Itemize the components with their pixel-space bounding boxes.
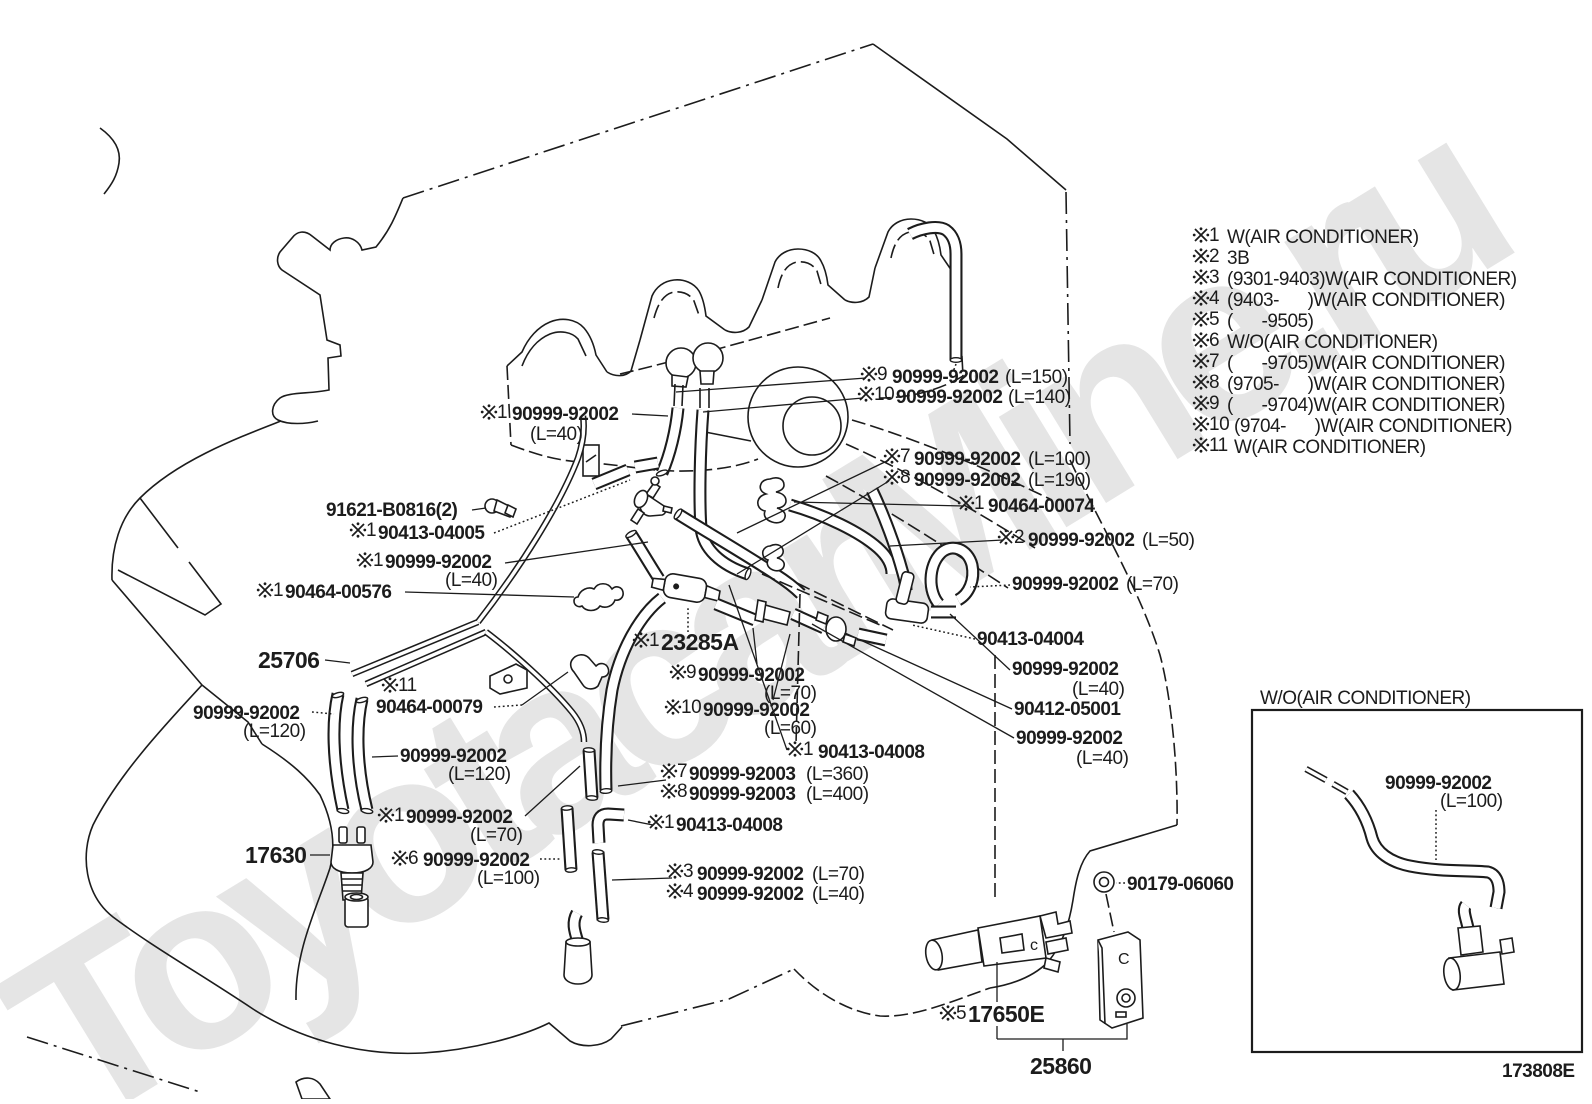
svg-text:(L=60): (L=60): [764, 718, 817, 739]
svg-text:90999-92002: 90999-92002: [892, 367, 999, 388]
svg-text:90999-92002: 90999-92002: [896, 387, 1003, 408]
svg-text:(L=40): (L=40): [530, 424, 583, 445]
svg-text:90464-00074: 90464-00074: [988, 496, 1095, 517]
svg-text:(L=400): (L=400): [806, 784, 869, 805]
svg-text:c: c: [1030, 937, 1038, 954]
svg-text:C: C: [1118, 951, 1130, 968]
svg-text:173808E: 173808E: [1502, 1061, 1575, 1082]
svg-text:(L=70): (L=70): [470, 825, 523, 846]
svg-text:(L=360): (L=360): [806, 764, 869, 785]
svg-text:25706: 25706: [258, 647, 319, 673]
svg-text:(L=190): (L=190): [1028, 470, 1091, 491]
svg-text:(L=70): (L=70): [1126, 574, 1179, 595]
svg-text:W(AIR CONDITIONER): W(AIR CONDITIONER): [1227, 227, 1419, 248]
svg-text:90999-92002: 90999-92002: [914, 449, 1021, 470]
svg-text:(L=150): (L=150): [1005, 367, 1068, 388]
svg-text:5: 5: [956, 1003, 966, 1024]
svg-text:3: 3: [1209, 267, 1219, 288]
svg-text:90413-04005: 90413-04005: [378, 523, 485, 544]
svg-text:90464-00079: 90464-00079: [376, 697, 483, 718]
svg-text:W/O(AIR CONDITIONER): W/O(AIR CONDITIONER): [1227, 332, 1438, 353]
svg-text:(9705- )W(AIR CONDITIONER: (9705- )W(AIR CONDITIONER): [1227, 374, 1505, 395]
svg-text:1: 1: [273, 580, 283, 601]
svg-text:8: 8: [1209, 372, 1219, 393]
svg-text:8: 8: [900, 467, 910, 488]
svg-text:90464-00576: 90464-00576: [285, 582, 392, 603]
svg-text:(L=100): (L=100): [477, 868, 540, 889]
svg-text:11: 11: [398, 675, 417, 696]
svg-text:1: 1: [373, 550, 383, 571]
svg-text:10: 10: [874, 384, 894, 405]
svg-text:1: 1: [664, 812, 674, 833]
svg-text:(9301-9403)W(AIR CONDITIONER): (9301-9403)W(AIR CONDITIONER): [1227, 269, 1517, 290]
svg-text:(L=50): (L=50): [1142, 530, 1195, 551]
svg-text:9: 9: [877, 364, 887, 385]
svg-text:23285A: 23285A: [661, 629, 739, 655]
svg-text:1: 1: [366, 520, 376, 541]
svg-text:11: 11: [1209, 435, 1228, 456]
svg-text:(L=120): (L=120): [448, 764, 511, 785]
svg-text:90999-92002: 90999-92002: [1012, 659, 1119, 680]
svg-text:(L=40): (L=40): [1076, 748, 1129, 769]
svg-text:( -9705)W(AIR CONDITIONER: ( -9705)W(AIR CONDITIONER): [1227, 353, 1505, 374]
svg-text:90413-04008: 90413-04008: [818, 742, 925, 763]
svg-text:9: 9: [1209, 393, 1219, 414]
svg-text:W/O(AIR CONDITIONER): W/O(AIR CONDITIONER): [1260, 688, 1471, 709]
svg-text:1: 1: [649, 630, 659, 651]
svg-text:90999-92003: 90999-92003: [689, 784, 796, 805]
svg-text:91621-B0816(2): 91621-B0816(2): [326, 500, 458, 521]
svg-text:(L=100): (L=100): [1440, 791, 1503, 812]
svg-text:W(AIR CONDITIONER): W(AIR CONDITIONER): [1234, 437, 1426, 458]
svg-text:90413-04004: 90413-04004: [977, 629, 1084, 650]
svg-text:1: 1: [974, 493, 984, 514]
svg-text:2: 2: [1209, 246, 1219, 267]
svg-text:3: 3: [683, 861, 693, 882]
svg-text:90999-92002: 90999-92002: [1012, 574, 1119, 595]
svg-text:6: 6: [1209, 330, 1219, 351]
svg-text:3B: 3B: [1227, 248, 1249, 269]
svg-text:10: 10: [1209, 414, 1229, 435]
svg-text:4: 4: [683, 881, 694, 902]
svg-text:(L=100): (L=100): [1028, 449, 1091, 470]
svg-text:1: 1: [1209, 225, 1219, 246]
svg-text:90412-05001: 90412-05001: [1014, 699, 1121, 720]
svg-text:7: 7: [677, 761, 687, 782]
svg-text:6: 6: [408, 848, 418, 869]
svg-text:1: 1: [394, 805, 404, 826]
svg-text:90999-92002: 90999-92002: [697, 884, 804, 905]
svg-text:(L=140): (L=140): [1008, 387, 1071, 408]
svg-text:1: 1: [803, 739, 813, 760]
svg-text:5: 5: [1209, 309, 1219, 330]
svg-text:(L=70): (L=70): [812, 864, 865, 885]
svg-text:4: 4: [1209, 288, 1220, 309]
svg-text:(L=40): (L=40): [1072, 679, 1125, 700]
svg-text:9: 9: [686, 662, 696, 683]
svg-text:(9403- )W(AIR CONDITIONER: (9403- )W(AIR CONDITIONER): [1227, 290, 1505, 311]
svg-text:2: 2: [1014, 527, 1024, 548]
svg-text:(9704- )W(AIR CONDITIONER: (9704- )W(AIR CONDITIONER): [1234, 416, 1512, 437]
svg-text:90179-06060: 90179-06060: [1127, 874, 1234, 895]
svg-text:17630: 17630: [245, 842, 306, 868]
svg-text:90999-92002: 90999-92002: [914, 470, 1021, 491]
svg-text:1: 1: [497, 402, 507, 423]
svg-text:(L=120): (L=120): [243, 721, 306, 742]
svg-text:25860: 25860: [1030, 1053, 1091, 1079]
svg-text:90999-92002: 90999-92002: [1028, 530, 1135, 551]
svg-text:90999-92003: 90999-92003: [689, 764, 796, 785]
svg-text:17650E: 17650E: [968, 1001, 1044, 1027]
svg-text:90999-92002: 90999-92002: [1016, 728, 1123, 749]
svg-text:90413-04008: 90413-04008: [676, 815, 783, 836]
svg-text:90999-92002: 90999-92002: [697, 864, 804, 885]
svg-text:( -9505): ( -9505): [1227, 311, 1314, 332]
svg-text:8: 8: [677, 781, 687, 802]
svg-text:90999-92002: 90999-92002: [512, 404, 619, 425]
svg-text:( -9704)W(AIR CONDITIONER: ( -9704)W(AIR CONDITIONER): [1227, 395, 1505, 416]
svg-text:7: 7: [1209, 351, 1219, 372]
svg-text:10: 10: [681, 697, 701, 718]
svg-text:7: 7: [900, 446, 910, 467]
svg-text:(L=40): (L=40): [812, 884, 865, 905]
svg-text:(L=40): (L=40): [445, 570, 498, 591]
